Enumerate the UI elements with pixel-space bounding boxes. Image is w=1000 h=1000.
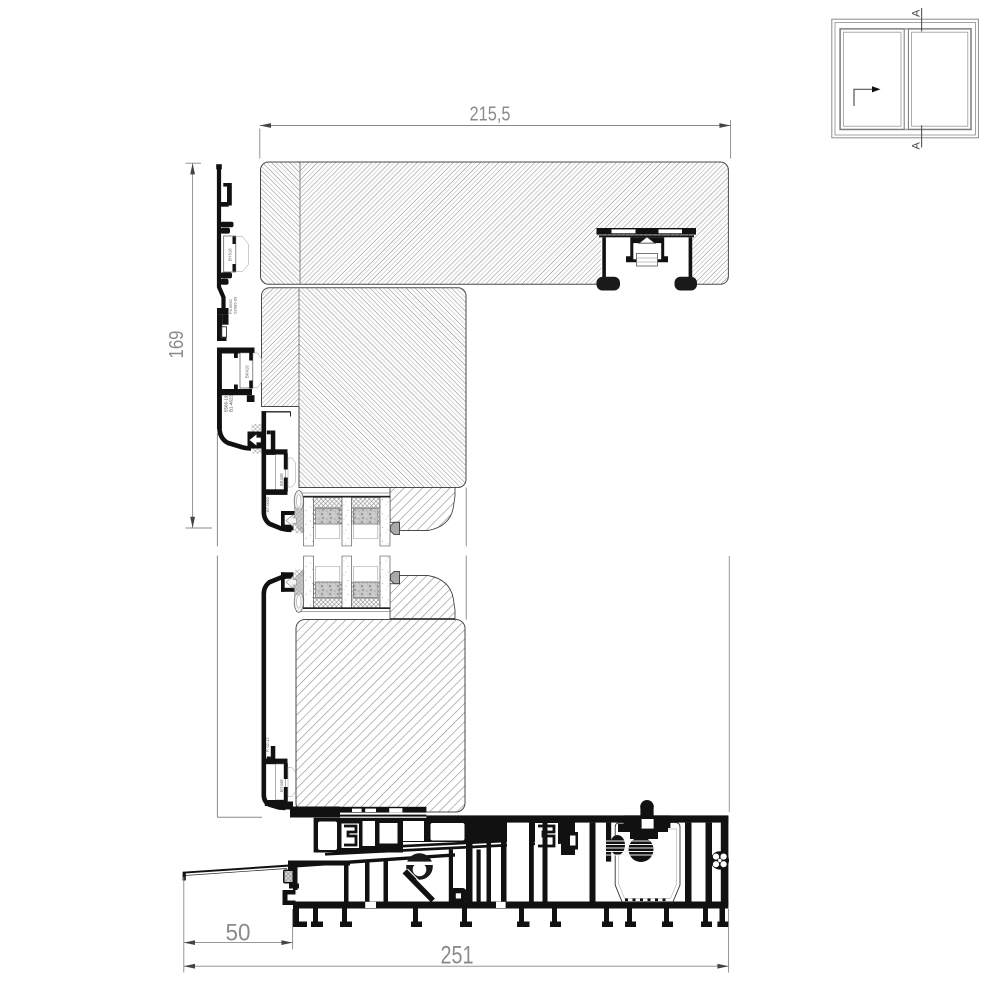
svg-text:BX438: BX438	[279, 473, 284, 486]
svg-text:BY448: BY448	[279, 779, 284, 792]
svg-text:A: A	[911, 142, 923, 150]
svg-text:B7-0092: B7-0092	[265, 496, 270, 512]
svg-text:A: A	[911, 9, 923, 17]
svg-text:251: 251	[441, 942, 474, 970]
svg-text:B1-4622: B1-4622	[229, 394, 234, 412]
svg-text:50: 50	[226, 920, 251, 947]
svg-text:169: 169	[165, 331, 188, 359]
svg-text:S2085-09: S2085-09	[233, 296, 238, 314]
svg-text:BX418: BX418	[244, 365, 249, 378]
svg-text:215,5: 215,5	[470, 104, 511, 126]
svg-text:P. 02-12: P. 02-12	[265, 737, 270, 752]
svg-text:BY618: BY618	[228, 248, 233, 261]
